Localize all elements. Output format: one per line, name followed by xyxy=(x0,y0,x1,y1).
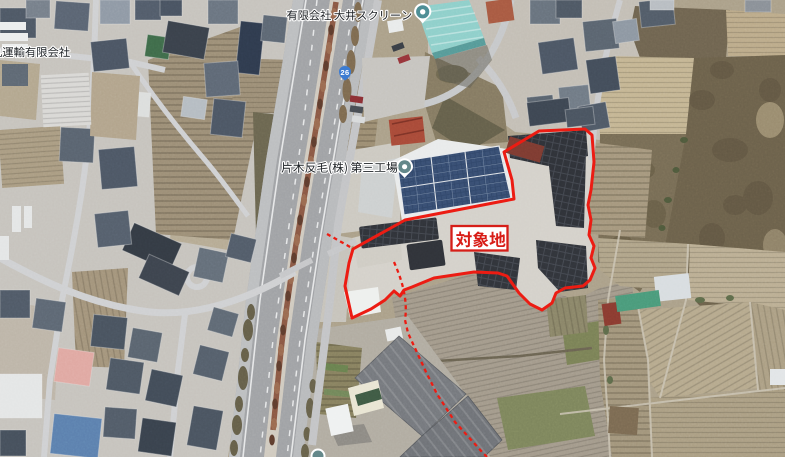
svg-text:26: 26 xyxy=(340,68,349,77)
